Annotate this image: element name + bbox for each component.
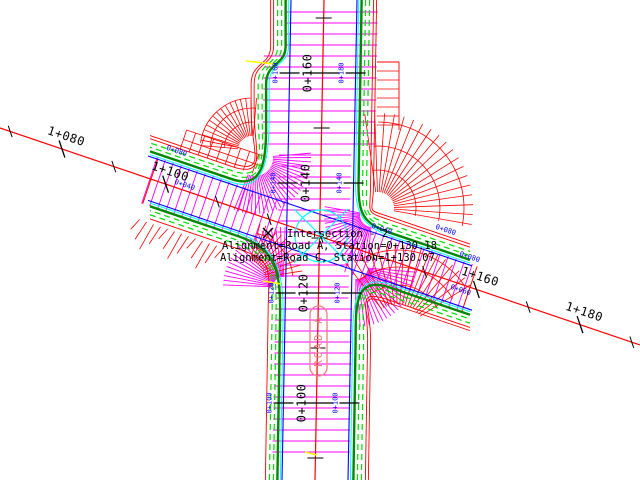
intersection-annotation-road-a[interactable]: Alignment=Road A, Station=0+130.18 — [222, 240, 437, 252]
intersection-annotation-road-c[interactable]: Alignment=Road C, Station=1+130.07 — [220, 252, 435, 264]
curb-line-se — [367, 299, 470, 480]
label-layer[interactable]: 1+0801+1001+1601+1800+1600+1400+1200+100… — [46, 54, 605, 423]
road-a-edge-station-label-right[interactable]: 0+180 — [338, 62, 346, 83]
road-a-edge-station-label-right[interactable]: 0+140 — [336, 172, 344, 193]
curb-line-nw — [150, 0, 271, 166]
curb-line-se — [365, 296, 470, 480]
road-a-edge-station-label-right[interactable]: 0+100 — [331, 392, 339, 413]
road-a-edge-station-label-left[interactable]: 0+140 — [270, 172, 278, 193]
curb-line-nw — [150, 0, 289, 184]
road-a-edge-station-label-left[interactable]: 0+120 — [268, 282, 276, 303]
intersection-annotation-title[interactable]: Intersection - 2 — [287, 228, 388, 240]
road-a-name-label[interactable]: ROAD A — [312, 315, 325, 367]
road-a-station-label[interactable]: 0+120 — [297, 274, 311, 313]
road-a-station-label[interactable]: 0+100 — [294, 384, 308, 423]
curb-line-se — [357, 289, 470, 480]
intersection-plan-view: 1+0801+1001+1601+1800+1600+1400+1200+100… — [0, 0, 640, 480]
road-a-edge-station-label-right[interactable]: 0+120 — [334, 282, 342, 303]
road-a-station-label[interactable]: 0+160 — [301, 54, 315, 93]
road-a-edge-station-label-left[interactable]: 0+100 — [265, 392, 273, 413]
road-c-edge-station-label[interactable]: 0+080 — [434, 223, 457, 237]
road-a-edge-station-label-left[interactable]: 0+160 — [272, 62, 280, 83]
road-a-station-label[interactable]: 0+140 — [299, 164, 313, 203]
curb-line-ne — [370, 0, 470, 247]
curb-line-ne — [363, 0, 470, 256]
cad-drawing-canvas[interactable]: 1+0801+1001+1601+1800+1600+1400+1200+100… — [0, 0, 640, 480]
